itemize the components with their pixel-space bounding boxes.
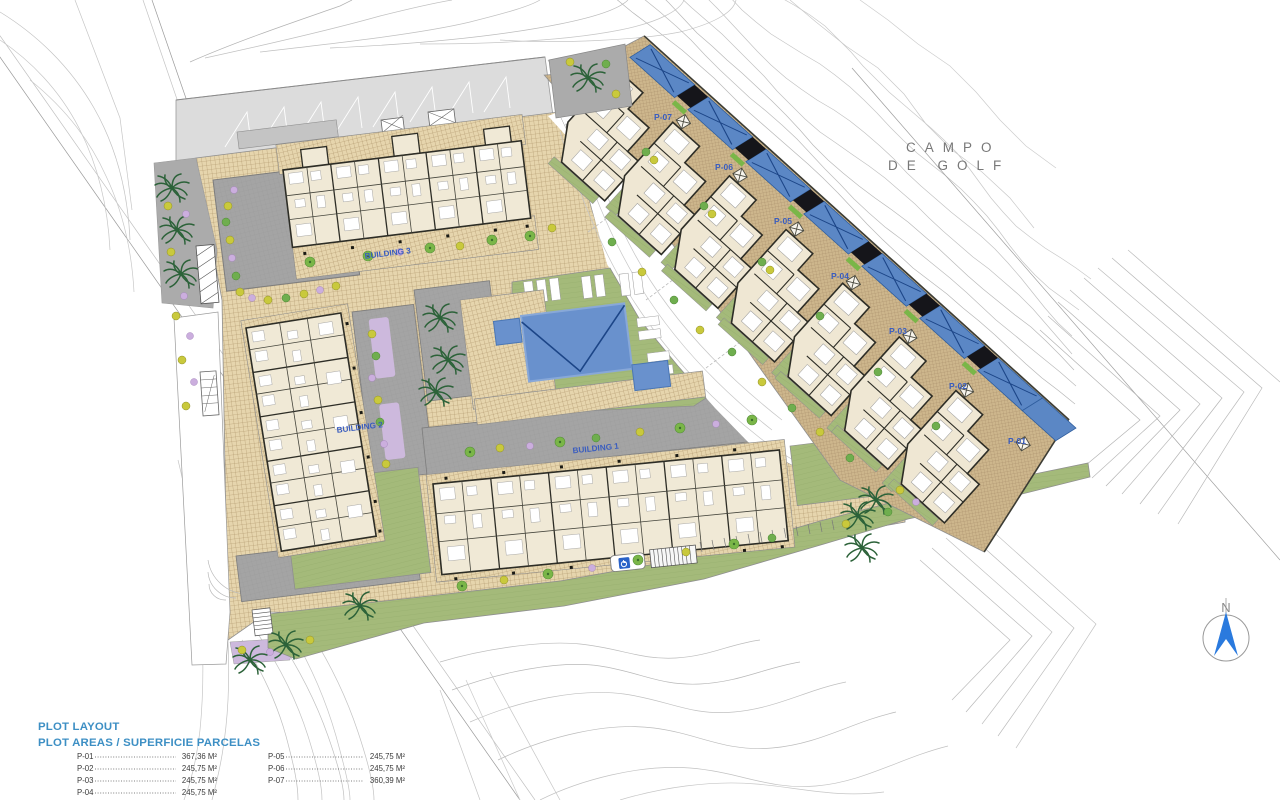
svg-text:360,39 M²: 360,39 M²	[370, 776, 406, 785]
svg-text:P-06: P-06	[715, 162, 733, 172]
svg-text:P-06: P-06	[268, 764, 284, 773]
svg-text:CAMPO: CAMPO	[906, 140, 1001, 155]
svg-text:367,36 M²: 367,36 M²	[182, 752, 218, 761]
svg-text:P-07: P-07	[268, 776, 284, 785]
svg-text:P-02: P-02	[949, 381, 967, 391]
svg-text:245,75 M²: 245,75 M²	[370, 752, 406, 761]
svg-text:P-05: P-05	[268, 752, 285, 761]
svg-text:P-07: P-07	[654, 112, 672, 122]
svg-text:P-01: P-01	[1008, 436, 1026, 446]
svg-text:P-03: P-03	[889, 326, 907, 336]
svg-text:245,75 M²: 245,75 M²	[182, 764, 218, 773]
svg-text:245,75 M²: 245,75 M²	[182, 776, 218, 785]
svg-text:245,75 M²: 245,75 M²	[182, 788, 218, 797]
svg-text:P-01: P-01	[77, 752, 93, 761]
svg-text:P-04: P-04	[77, 788, 94, 797]
svg-text:245,75 M²: 245,75 M²	[370, 764, 406, 773]
svg-text:P-03: P-03	[77, 776, 93, 785]
svg-text:PLOT LAYOUT: PLOT LAYOUT	[38, 721, 120, 733]
svg-text:DE GOLF: DE GOLF	[888, 158, 1010, 173]
svg-text:PLOT AREAS / SUPERFICIE PARCEL: PLOT AREAS / SUPERFICIE PARCELAS	[38, 737, 260, 749]
svg-text:N: N	[1221, 600, 1230, 615]
svg-text:P-04: P-04	[831, 271, 849, 281]
svg-text:P-02: P-02	[77, 764, 93, 773]
svg-text:P-05: P-05	[774, 216, 792, 226]
